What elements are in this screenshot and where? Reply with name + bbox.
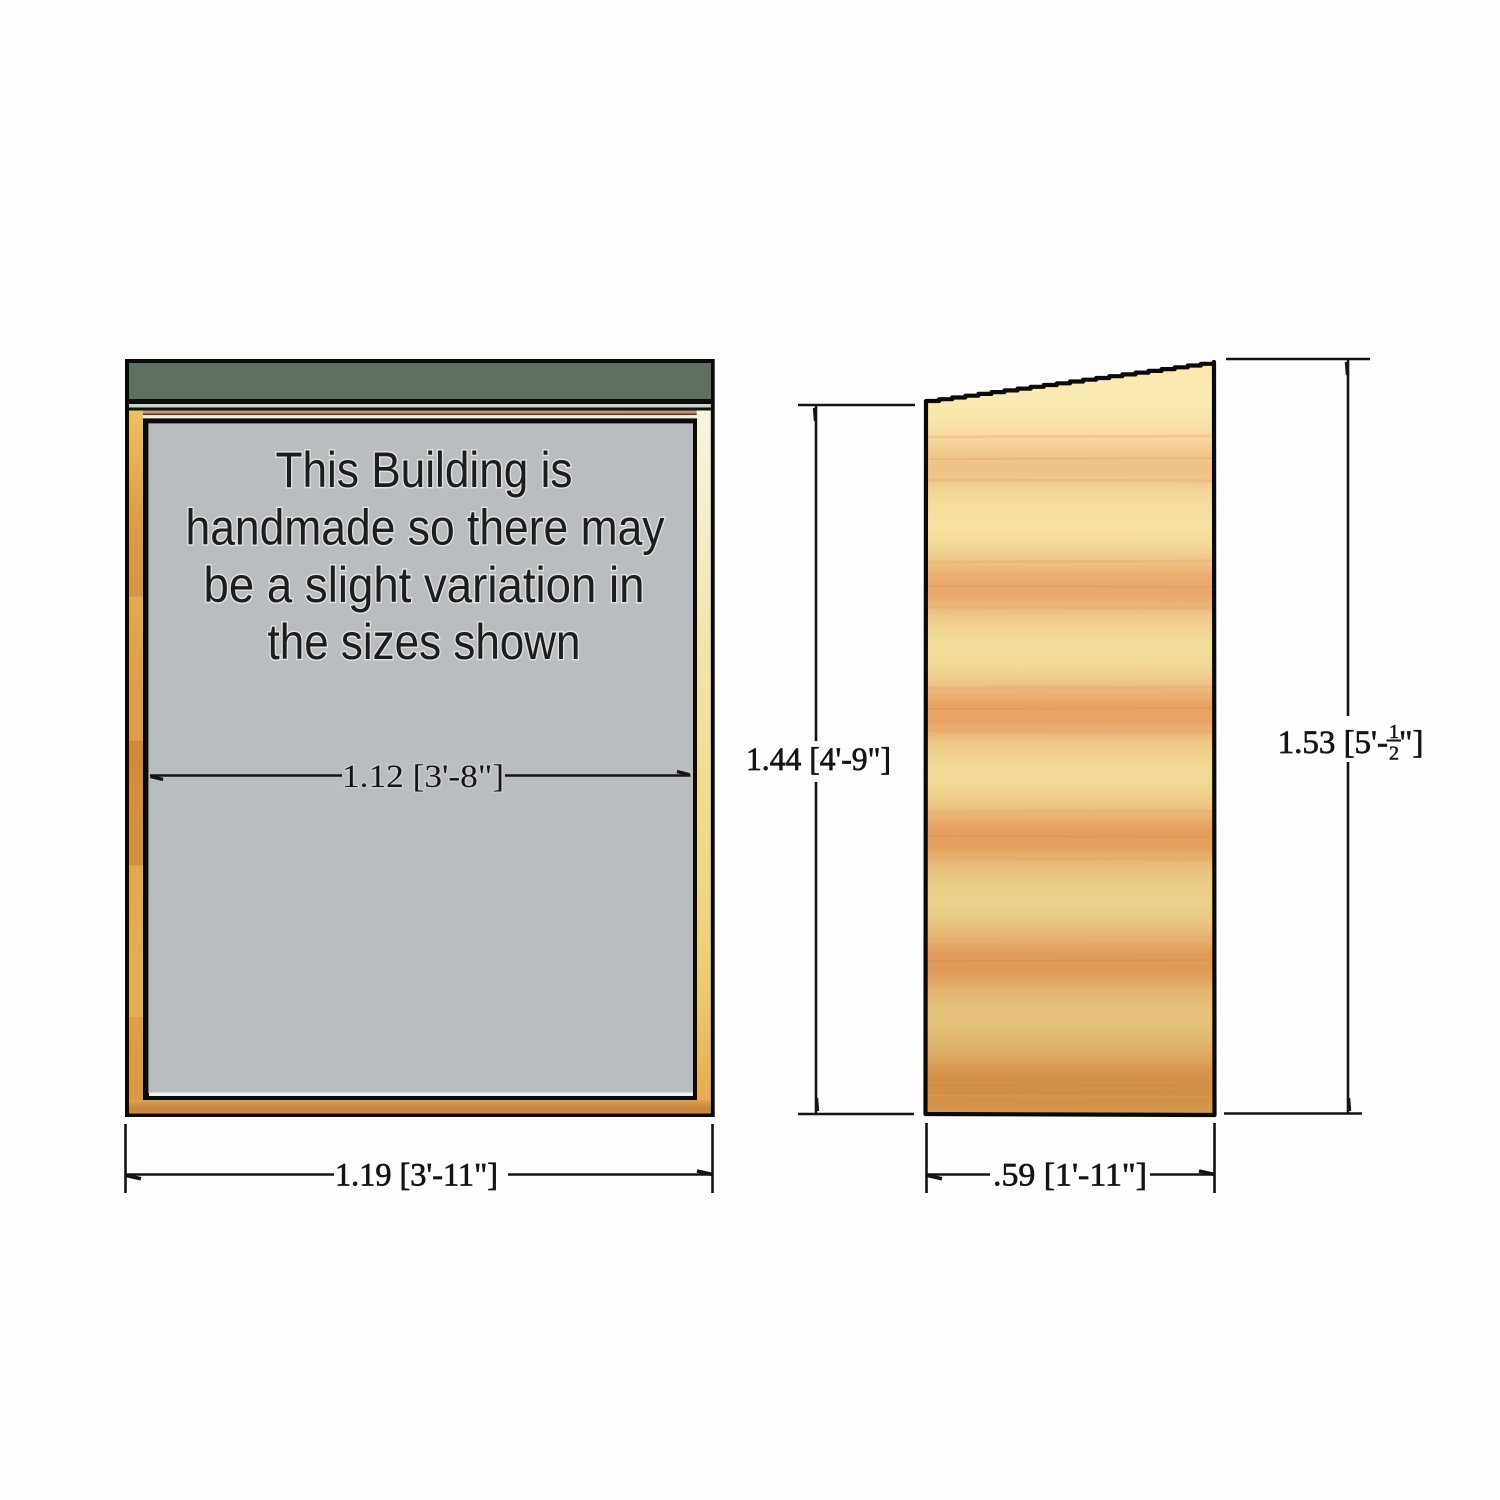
svg-text:This Building is: This Building is <box>276 442 573 498</box>
svg-text:handmade so there may: handmade so there may <box>186 500 665 556</box>
svg-text:1.12 [3'-8"]: 1.12 [3'-8"] <box>342 759 504 795</box>
svg-text:1.19 [3'-11"]: 1.19 [3'-11"] <box>335 1158 498 1194</box>
svg-text:1.53 [5'-: 1.53 [5'- <box>1278 725 1388 761</box>
svg-text:2: 2 <box>1389 743 1399 765</box>
svg-text:1.44 [4'-9"]: 1.44 [4'-9"] <box>746 742 891 778</box>
svg-text:"]: "] <box>1399 725 1423 761</box>
svg-text:the sizes shown: the sizes shown <box>268 614 581 670</box>
svg-text:be a slight variation in: be a slight variation in <box>204 557 645 613</box>
svg-text:.59 [1'-11"]: .59 [1'-11"] <box>993 1158 1147 1194</box>
